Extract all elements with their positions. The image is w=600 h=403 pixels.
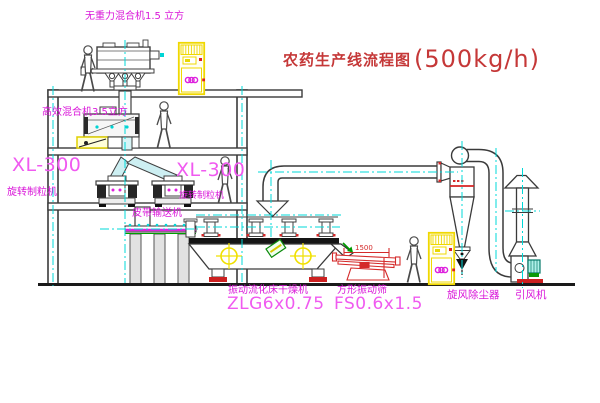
label-granulator-left-model: XL-300 [12, 156, 81, 175]
gravity-free-mixer [81, 40, 164, 117]
label-granulator-mid-name: 旋转制粒机 [179, 192, 224, 201]
granulator-left [96, 181, 138, 207]
title-chinese: 农药生产线流程图 [283, 49, 411, 70]
label-belt-conveyor: 皮带输送机 [132, 209, 182, 219]
label-dryer-model: ZLG6x0.75 [227, 296, 325, 313]
induced-draft-fan [511, 256, 543, 284]
label-granulator-left-name: 旋转制粒机 [7, 188, 57, 198]
diagram-title: 农药生产线流程图 (500kg/h) [283, 45, 540, 73]
title-capacity: (500kg/h) [414, 45, 540, 73]
y-chute [108, 157, 182, 181]
exhaust-stack [505, 176, 538, 257]
person-ground [407, 237, 421, 283]
dimension-1500: 1500 [355, 245, 373, 252]
label-high-efficiency-mixer: 高效混合机3.5立方 [42, 108, 128, 118]
control-cabinet-top [179, 43, 205, 94]
duct-to-cyclone [257, 162, 454, 217]
label-fan: 引风机 [515, 290, 547, 301]
label-screen-model: FS0.6x1.5 [334, 296, 423, 313]
control-cabinet-right [429, 233, 455, 284]
person-second-floor [157, 102, 171, 148]
label-granulator-mid-model: XL-300 [176, 161, 245, 180]
cad-flow-diagram: 农药生产线流程图 (500kg/h) 无重力混合机1.5 立方 高效混合机3.5… [0, 0, 600, 403]
label-cyclone: 旋风除尘器 [447, 290, 500, 301]
label-gravity-mixer: 无重力混合机1.5 立方 [85, 12, 184, 22]
cyclone-outlet-elbow [452, 147, 469, 164]
